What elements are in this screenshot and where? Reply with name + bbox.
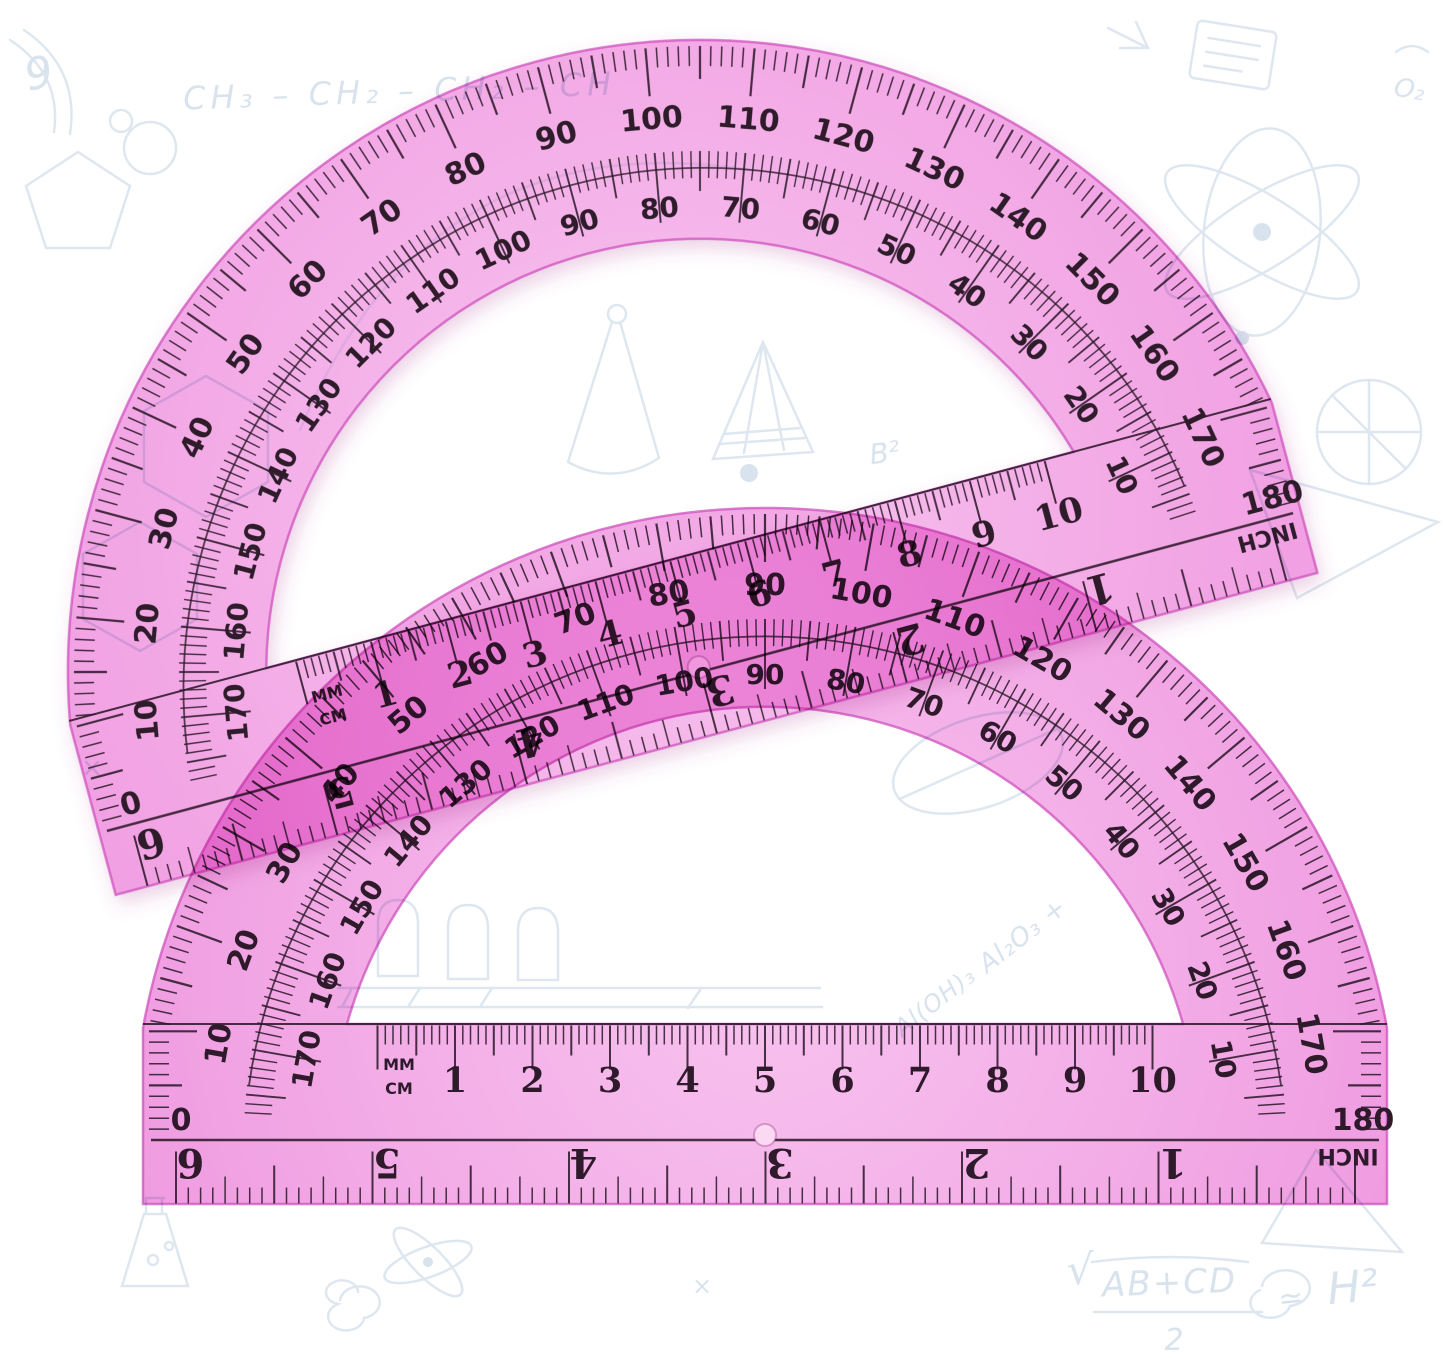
- scale-label: INCH: [1317, 1143, 1378, 1168]
- scale-label: 2: [520, 1060, 544, 1101]
- scale-label: 70: [720, 190, 762, 226]
- scale-label: 4: [675, 1060, 699, 1101]
- scale-label: 1: [443, 1060, 467, 1101]
- protractors-photo-svg: CH₃ – CH₂ – CH₂ – CH9O₂B²Al₂O₃ +Al(OH)₃√…: [0, 0, 1445, 1358]
- scale-label: 9: [1063, 1060, 1087, 1101]
- scale-label: 4: [570, 1139, 598, 1186]
- doodle-text: 2: [1164, 1323, 1183, 1358]
- doodle-text: ≃: [1277, 1280, 1306, 1317]
- scale-label: 1: [1159, 1139, 1187, 1186]
- scale-label: 100: [619, 99, 684, 139]
- scale-label: 80: [639, 190, 681, 226]
- doodle-text: B²: [867, 434, 902, 471]
- scale-label: 8: [985, 1060, 1009, 1101]
- doodle-text: AB+CD: [1099, 1261, 1237, 1306]
- scale-label: 170: [217, 682, 255, 743]
- doodle-text: H²: [1325, 1260, 1380, 1315]
- scale-label: 0: [171, 1103, 192, 1138]
- blob-doodle: [740, 464, 758, 482]
- scale-label: 10: [128, 698, 167, 743]
- scale-label: CM: [385, 1079, 413, 1098]
- scale-label: 20: [128, 601, 167, 646]
- scale-label: 10: [198, 1020, 240, 1067]
- circle-cross-doodle: [1317, 380, 1421, 484]
- scale-label: 6: [830, 1060, 854, 1101]
- scale-label: 160: [217, 601, 255, 662]
- scale-label: 5: [373, 1139, 401, 1186]
- scale-label: 6: [177, 1139, 205, 1186]
- scale-label: 180: [1332, 1103, 1395, 1138]
- scale-label: MM: [383, 1055, 415, 1074]
- product-photo: Two overlapping translucent pink plastic…: [0, 0, 1445, 1358]
- scale-label: 5: [753, 1060, 777, 1101]
- scale-label: 2: [963, 1139, 991, 1186]
- scale-label: 3: [766, 1139, 794, 1186]
- doodle-text: √: [1067, 1245, 1094, 1294]
- scale-label: 10: [1128, 1060, 1177, 1101]
- doodle-text: ×: [692, 1272, 712, 1300]
- rivet-hole: [754, 1124, 776, 1146]
- scale-label: 3: [598, 1060, 622, 1101]
- scale-label: 7: [908, 1060, 932, 1101]
- doodle-text: O₂: [1392, 73, 1428, 108]
- scale-label: 10: [1204, 1037, 1243, 1081]
- scale-label: 110: [716, 99, 781, 139]
